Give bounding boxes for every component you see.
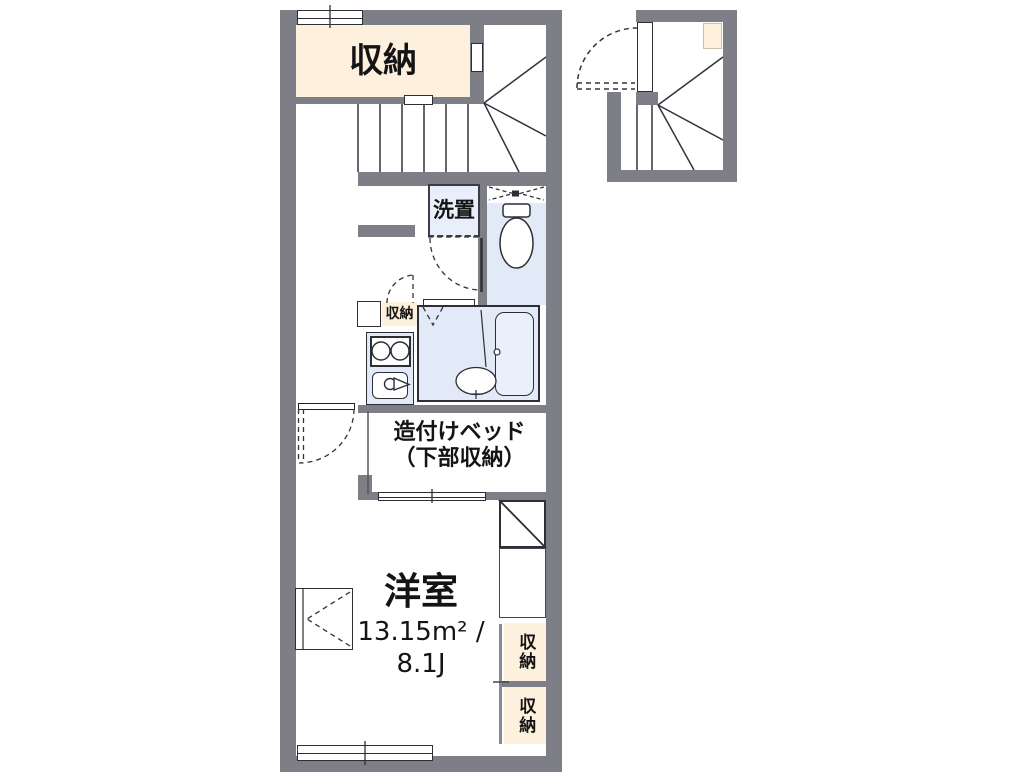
closet-lower: 収納 (504, 687, 546, 744)
vent-louver-icon (489, 187, 544, 200)
window-bottom (297, 745, 433, 761)
room-label-group: 洋室 13.15m² / 8.1J (321, 570, 521, 680)
entry-door-swing (577, 28, 637, 89)
stairbox-hub (636, 92, 658, 105)
stairbox-wall-top (636, 10, 737, 22)
built-in-bed-label: 造付けベッド （下部収納） (373, 420, 546, 473)
toilet-room-floor (487, 203, 546, 305)
hall-storage-label: 収納 (386, 306, 414, 323)
room-name: 洋室 (321, 570, 521, 614)
room-area-m2: 13.15m² / (321, 617, 521, 648)
storage-room-label: 収納 (296, 41, 470, 82)
washer-label: 洗置 (433, 198, 475, 223)
bathtub-icon (495, 312, 534, 396)
floor-plan: 洗置 収納 収納 収納 (0, 0, 1017, 772)
kitchen-sink-icon (372, 372, 408, 399)
washer-space: 洗置 (428, 184, 480, 237)
hall-cabinet (357, 301, 381, 327)
room-area-jo: 8.1J (321, 649, 521, 680)
entry-door-leaf (637, 22, 653, 92)
room-door-leaf (298, 403, 355, 410)
stove-icon (370, 336, 411, 367)
stairbox-wall-left (607, 92, 621, 182)
stairbox-shaft (703, 23, 722, 49)
stairbox-wall-bottom (607, 170, 737, 182)
bed-label-line1: 造付けベッド (373, 420, 546, 446)
stairbox-wall-right (723, 10, 737, 182)
window-bed (378, 492, 486, 501)
vent-center (512, 191, 519, 197)
bed-label-line2: （下部収納） (373, 446, 546, 472)
wall-hall-nook (358, 225, 415, 237)
refrigerator-space (499, 500, 546, 548)
wall-right (546, 10, 562, 772)
closet-lower-label: 収納 (515, 697, 535, 735)
opening-storage-bottom (404, 95, 433, 105)
wall-above-bed (358, 405, 546, 413)
hall-storage: 収納 (382, 302, 417, 326)
toilet-door-swing (428, 237, 482, 292)
window-top (297, 10, 363, 25)
wall-under-storage (296, 97, 484, 104)
room-door-swing (299, 409, 355, 463)
opening-storage-side (471, 43, 483, 72)
wall-left (280, 10, 296, 772)
